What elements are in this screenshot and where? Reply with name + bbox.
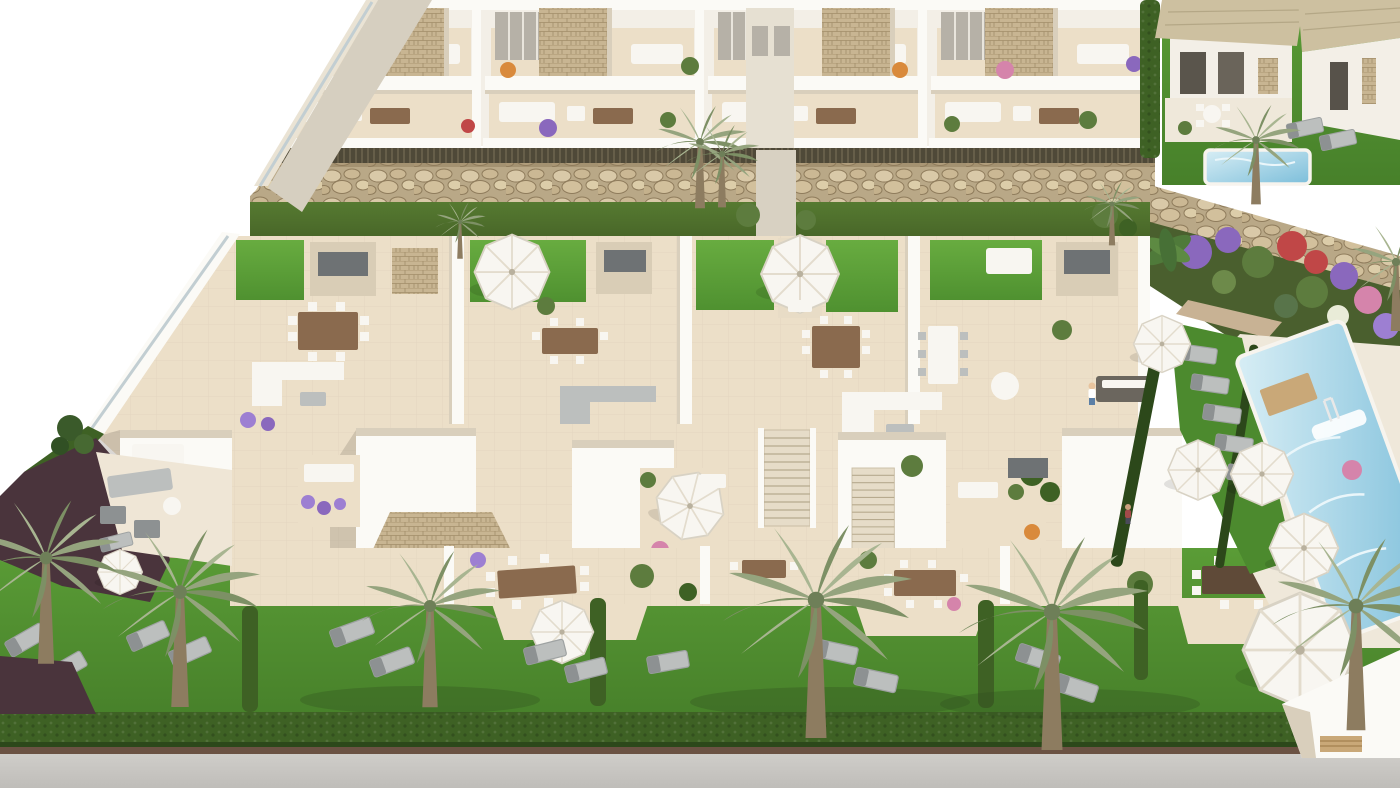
round-table [991,372,1019,400]
hedge-divider [590,598,606,706]
villa-1 [1155,0,1304,98]
hedge-divider [242,606,258,712]
person [1125,504,1131,524]
person [1089,383,1096,406]
stone-niche [392,248,438,294]
outdoor-kitchen-box [1064,250,1110,274]
render-image: Photorealistic aerial 3D architectural r… [0,0,1400,788]
dining-table [542,328,598,354]
villa-window [1218,52,1244,94]
outdoor-kitchen-box [318,252,368,276]
street-curb [0,747,1400,755]
solarium-lawn [236,240,304,300]
walkway-through-wall [756,150,796,238]
daybed [986,248,1032,274]
villa-window [1180,52,1206,94]
street [0,754,1400,788]
pallet-stack [1320,736,1362,752]
outdoor-kitchen-box [604,250,646,272]
villa-window [1330,62,1348,110]
coffee-table [163,497,181,515]
patio-table [1203,105,1221,123]
street-band [0,712,1400,788]
architectural-render [0,0,1400,788]
villas-block [1140,0,1400,356]
dining-table [928,326,958,384]
reed-fence [258,148,1155,165]
hedge-divider [1134,580,1148,680]
dining-table [298,312,358,350]
dining-table [812,326,860,368]
between-blocks-walkway [746,8,794,150]
